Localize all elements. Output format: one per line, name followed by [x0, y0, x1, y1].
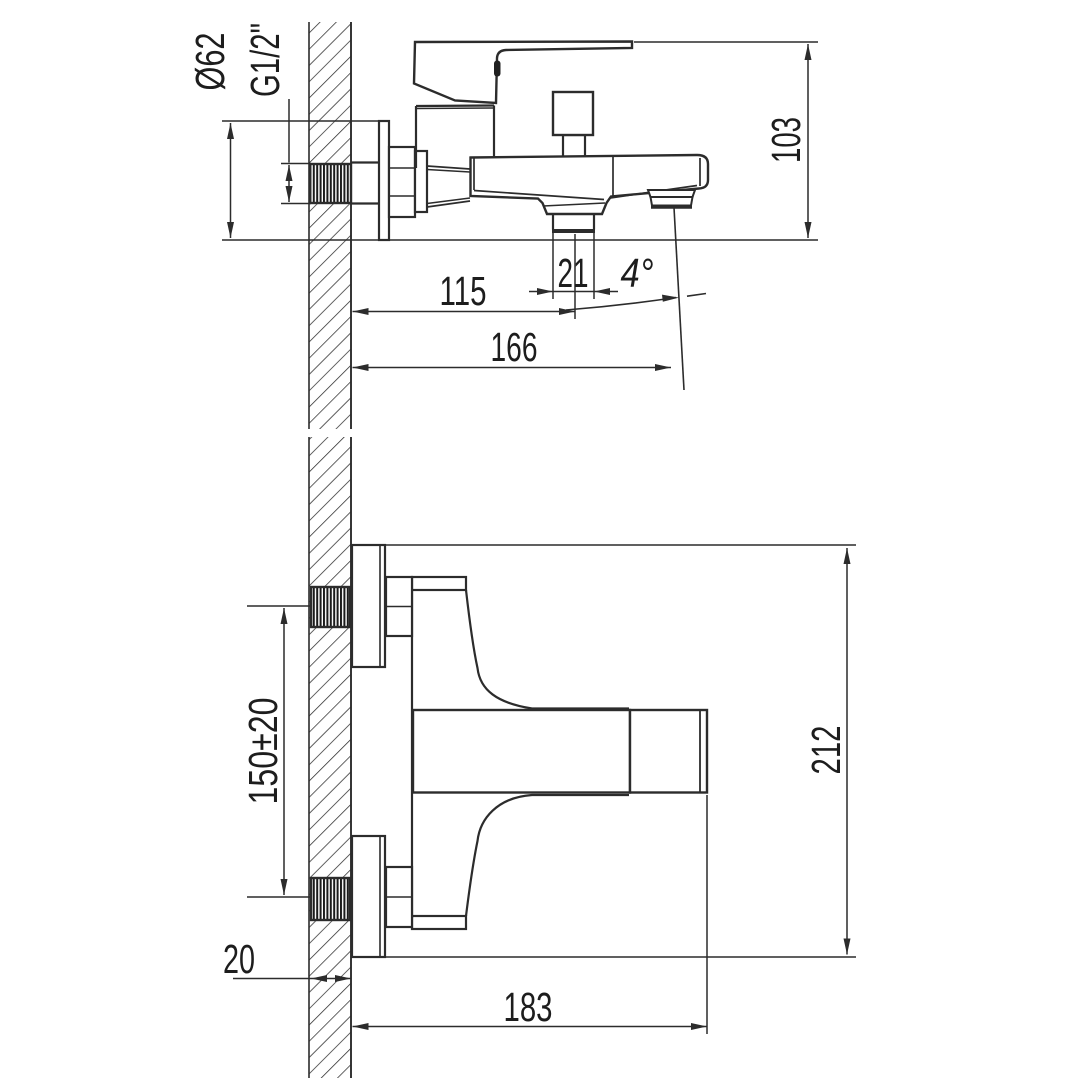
dim-label-115: 115	[440, 268, 487, 314]
dim-label-escutcheon-diameter: Ø62	[187, 33, 233, 91]
lever-handle-side	[414, 42, 632, 104]
mounting-foot-lower	[412, 916, 466, 929]
wall-section-side	[309, 22, 351, 429]
mounting-foot-upper	[412, 577, 466, 590]
union-connector	[415, 151, 470, 212]
dim-label-166: 166	[491, 324, 538, 370]
escutcheon-upper	[352, 545, 385, 667]
pipe-thread-lower	[311, 878, 350, 920]
dim-label-angle-4deg: 4°	[621, 250, 654, 296]
diverter-knob	[553, 92, 593, 157]
hex-nut-upper	[386, 577, 412, 636]
side-view: Ø62 G1/2" 103 115 21 4° 166	[187, 22, 818, 429]
escutcheon-side	[379, 121, 389, 240]
supply-pipe-side	[310, 163, 379, 204]
lever-pivot	[494, 61, 501, 77]
stream-angle-lines	[566, 208, 706, 391]
dim-label-212: 212	[803, 726, 849, 775]
technical-drawing-page: Ø62 G1/2" 103 115 21 4° 166	[0, 0, 1080, 1080]
pipe-thread-upper	[311, 587, 350, 627]
spout-aerator	[648, 190, 695, 207]
dim-label-183: 183	[504, 984, 553, 1030]
escutcheon-lower	[352, 836, 385, 957]
plan-view: 150±20 212 20 183	[223, 437, 856, 1078]
dim-label-height-103: 103	[763, 117, 809, 163]
hex-nut-lower	[386, 867, 412, 927]
faucet-dimension-drawing: Ø62 G1/2" 103 115 21 4° 166	[0, 0, 1080, 1080]
faucet-body-plan	[413, 710, 707, 793]
wall-section-plan	[309, 437, 351, 1078]
pipe-thread	[310, 164, 351, 203]
dim-label-150pm20: 150±20	[240, 698, 286, 805]
dim-label-thread-size: G1/2"	[242, 23, 288, 97]
dim-label-20: 20	[223, 936, 255, 982]
hex-nut-side	[389, 147, 415, 217]
dim-label-21: 21	[558, 250, 589, 296]
diverter-stem	[552, 214, 595, 231]
